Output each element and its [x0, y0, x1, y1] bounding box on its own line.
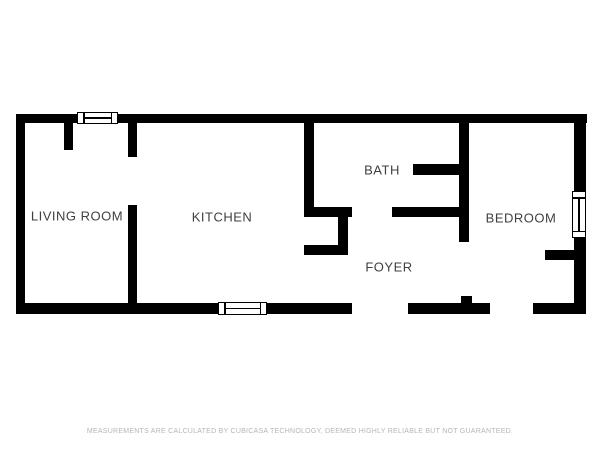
window-icon-living-room-window	[77, 112, 118, 124]
room-label-foyer: FOYER	[365, 260, 412, 275]
disclaimer-text: MEASUREMENTS ARE CALCULATED BY CUBICASA …	[0, 428, 600, 435]
wall-outer-left	[16, 114, 25, 314]
room-label-bath: BATH	[364, 163, 400, 178]
window-icon-bedroom-window	[572, 191, 586, 238]
room-label-living-room: LIVING ROOM	[31, 209, 123, 224]
wall-living-kitchen-lower	[128, 205, 137, 303]
wall-living-room-stub	[64, 123, 73, 150]
room-label-kitchen: KITCHEN	[192, 210, 253, 225]
wall-bath-interior-stub	[413, 164, 463, 175]
floorplan-canvas: LIVING ROOM KITCHEN BATH FOYER BEDROOM	[0, 0, 600, 450]
wall-living-kitchen-upper	[128, 123, 137, 157]
wall-bath-bedroom-divider	[459, 123, 469, 242]
window-icon-kitchen-window	[218, 302, 267, 315]
wall-outer-bottom-mid	[408, 303, 490, 314]
wall-kitchen-bath-divider	[304, 123, 314, 217]
wall-foyer-closet-bottom	[304, 245, 348, 255]
wall-bedroom-closet-stub	[545, 250, 574, 260]
wall-bath-bottom-left	[304, 207, 352, 217]
wall-outer-bottom-left	[16, 303, 352, 314]
floorplan-page: LIVING ROOM KITCHEN BATH FOYER BEDROOM M…	[0, 0, 600, 450]
wall-outer-bottom-right	[533, 303, 586, 314]
room-label-bedroom: BEDROOM	[486, 211, 557, 226]
wall-foyer-bedroom-stub	[461, 296, 472, 304]
wall-foyer-closet-right	[338, 217, 348, 245]
wall-bath-bottom-right	[392, 207, 460, 217]
